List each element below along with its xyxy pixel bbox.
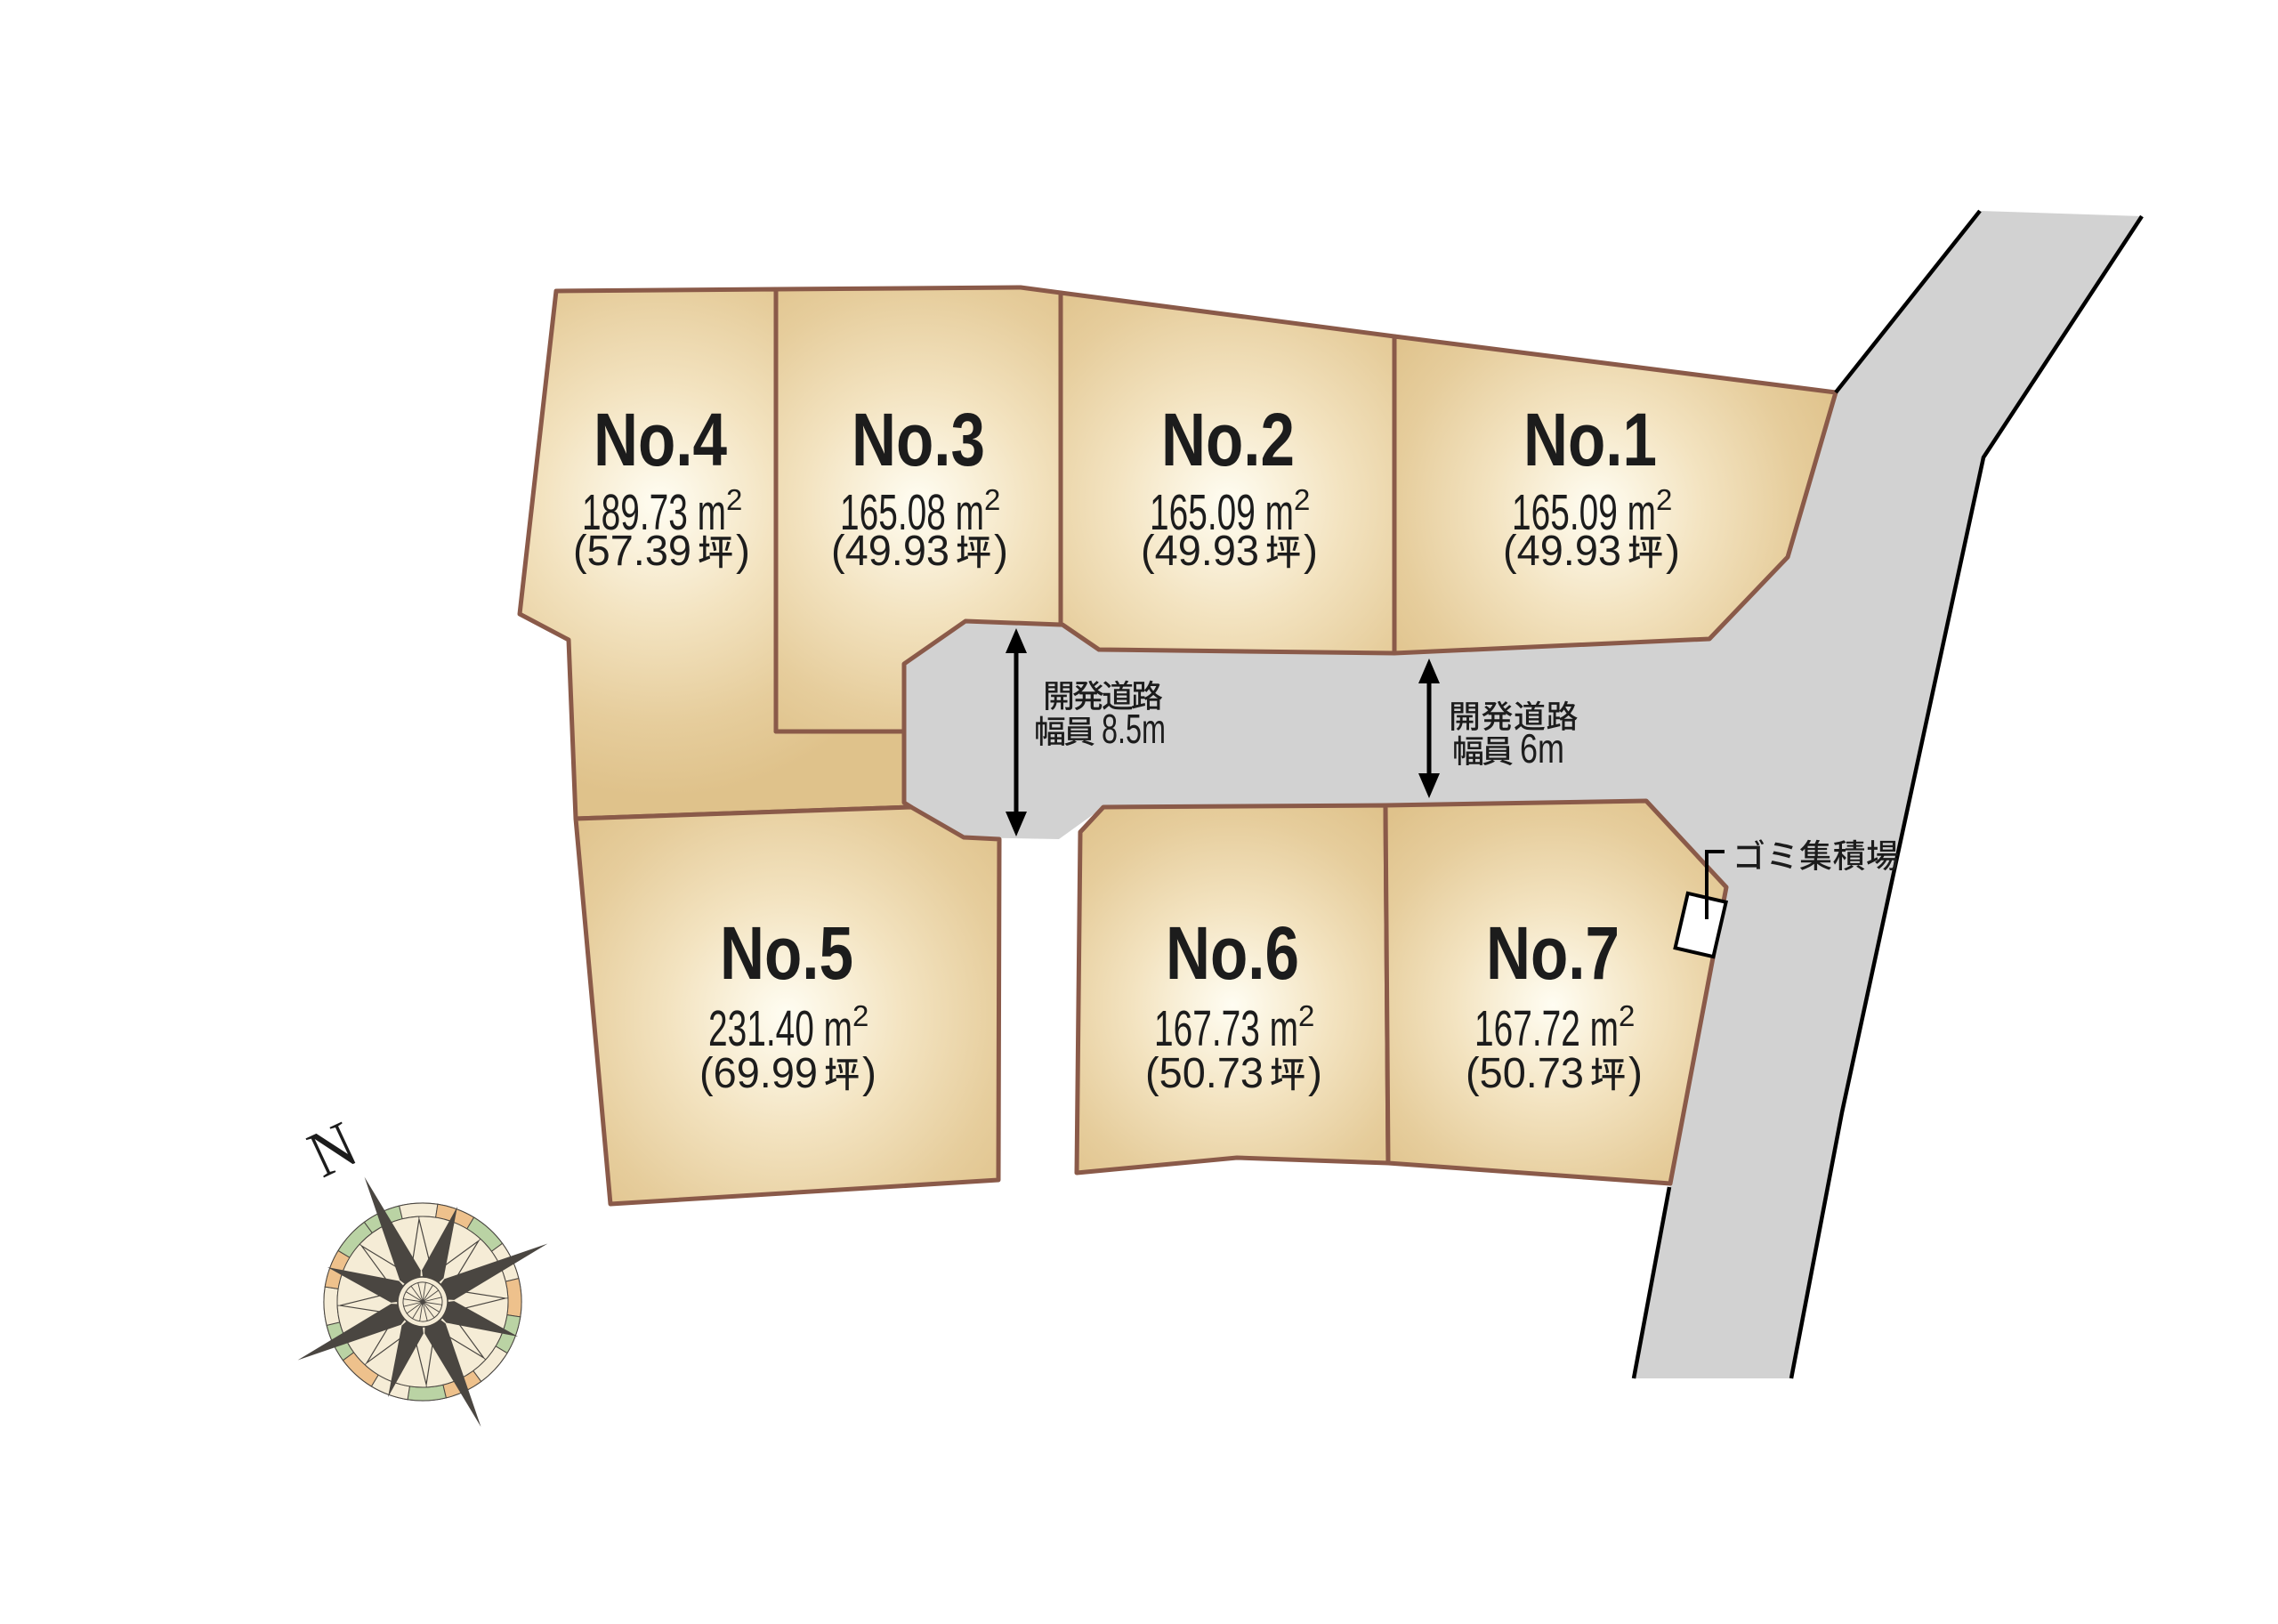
svg-text:231.40 m: 231.40 m xyxy=(708,1000,852,1057)
svg-text:No.2: No.2 xyxy=(1161,398,1295,481)
svg-text:): ) xyxy=(1304,528,1318,575)
svg-text:No.1: No.1 xyxy=(1523,398,1657,481)
svg-text:167.72 m: 167.72 m xyxy=(1474,1000,1619,1057)
svg-text:(49.93: (49.93 xyxy=(1141,528,1259,575)
svg-text:2: 2 xyxy=(726,483,742,516)
svg-text:): ) xyxy=(994,528,1008,575)
svg-text:(57.39: (57.39 xyxy=(573,528,691,575)
svg-text:No.3: No.3 xyxy=(852,398,985,481)
svg-text:No.6: No.6 xyxy=(1166,911,1299,995)
svg-text:2: 2 xyxy=(984,483,1000,516)
svg-text:(50.73: (50.73 xyxy=(1145,1050,1264,1097)
svg-text:): ) xyxy=(1308,1050,1322,1097)
svg-text:): ) xyxy=(1666,528,1680,575)
svg-text:(50.73: (50.73 xyxy=(1466,1050,1584,1097)
svg-text:167.73 m: 167.73 m xyxy=(1154,1000,1298,1057)
svg-text:(69.99: (69.99 xyxy=(699,1050,818,1097)
svg-text:(49.93: (49.93 xyxy=(831,528,949,575)
svg-text:6m: 6m xyxy=(1520,725,1564,772)
svg-text:No.7: No.7 xyxy=(1486,911,1620,995)
svg-text:2: 2 xyxy=(1298,999,1314,1032)
svg-text:): ) xyxy=(862,1050,876,1097)
svg-text:No.4: No.4 xyxy=(594,398,727,481)
svg-text:2: 2 xyxy=(1294,483,1310,516)
svg-text:): ) xyxy=(1628,1050,1643,1097)
svg-text:): ) xyxy=(736,528,750,575)
svg-text:No.5: No.5 xyxy=(720,911,853,995)
svg-text:2: 2 xyxy=(1656,483,1672,516)
svg-text:8.5m: 8.5m xyxy=(1102,706,1166,752)
svg-text:2: 2 xyxy=(1619,999,1635,1032)
svg-text:(49.93: (49.93 xyxy=(1503,528,1621,575)
svg-text:2: 2 xyxy=(852,999,868,1032)
